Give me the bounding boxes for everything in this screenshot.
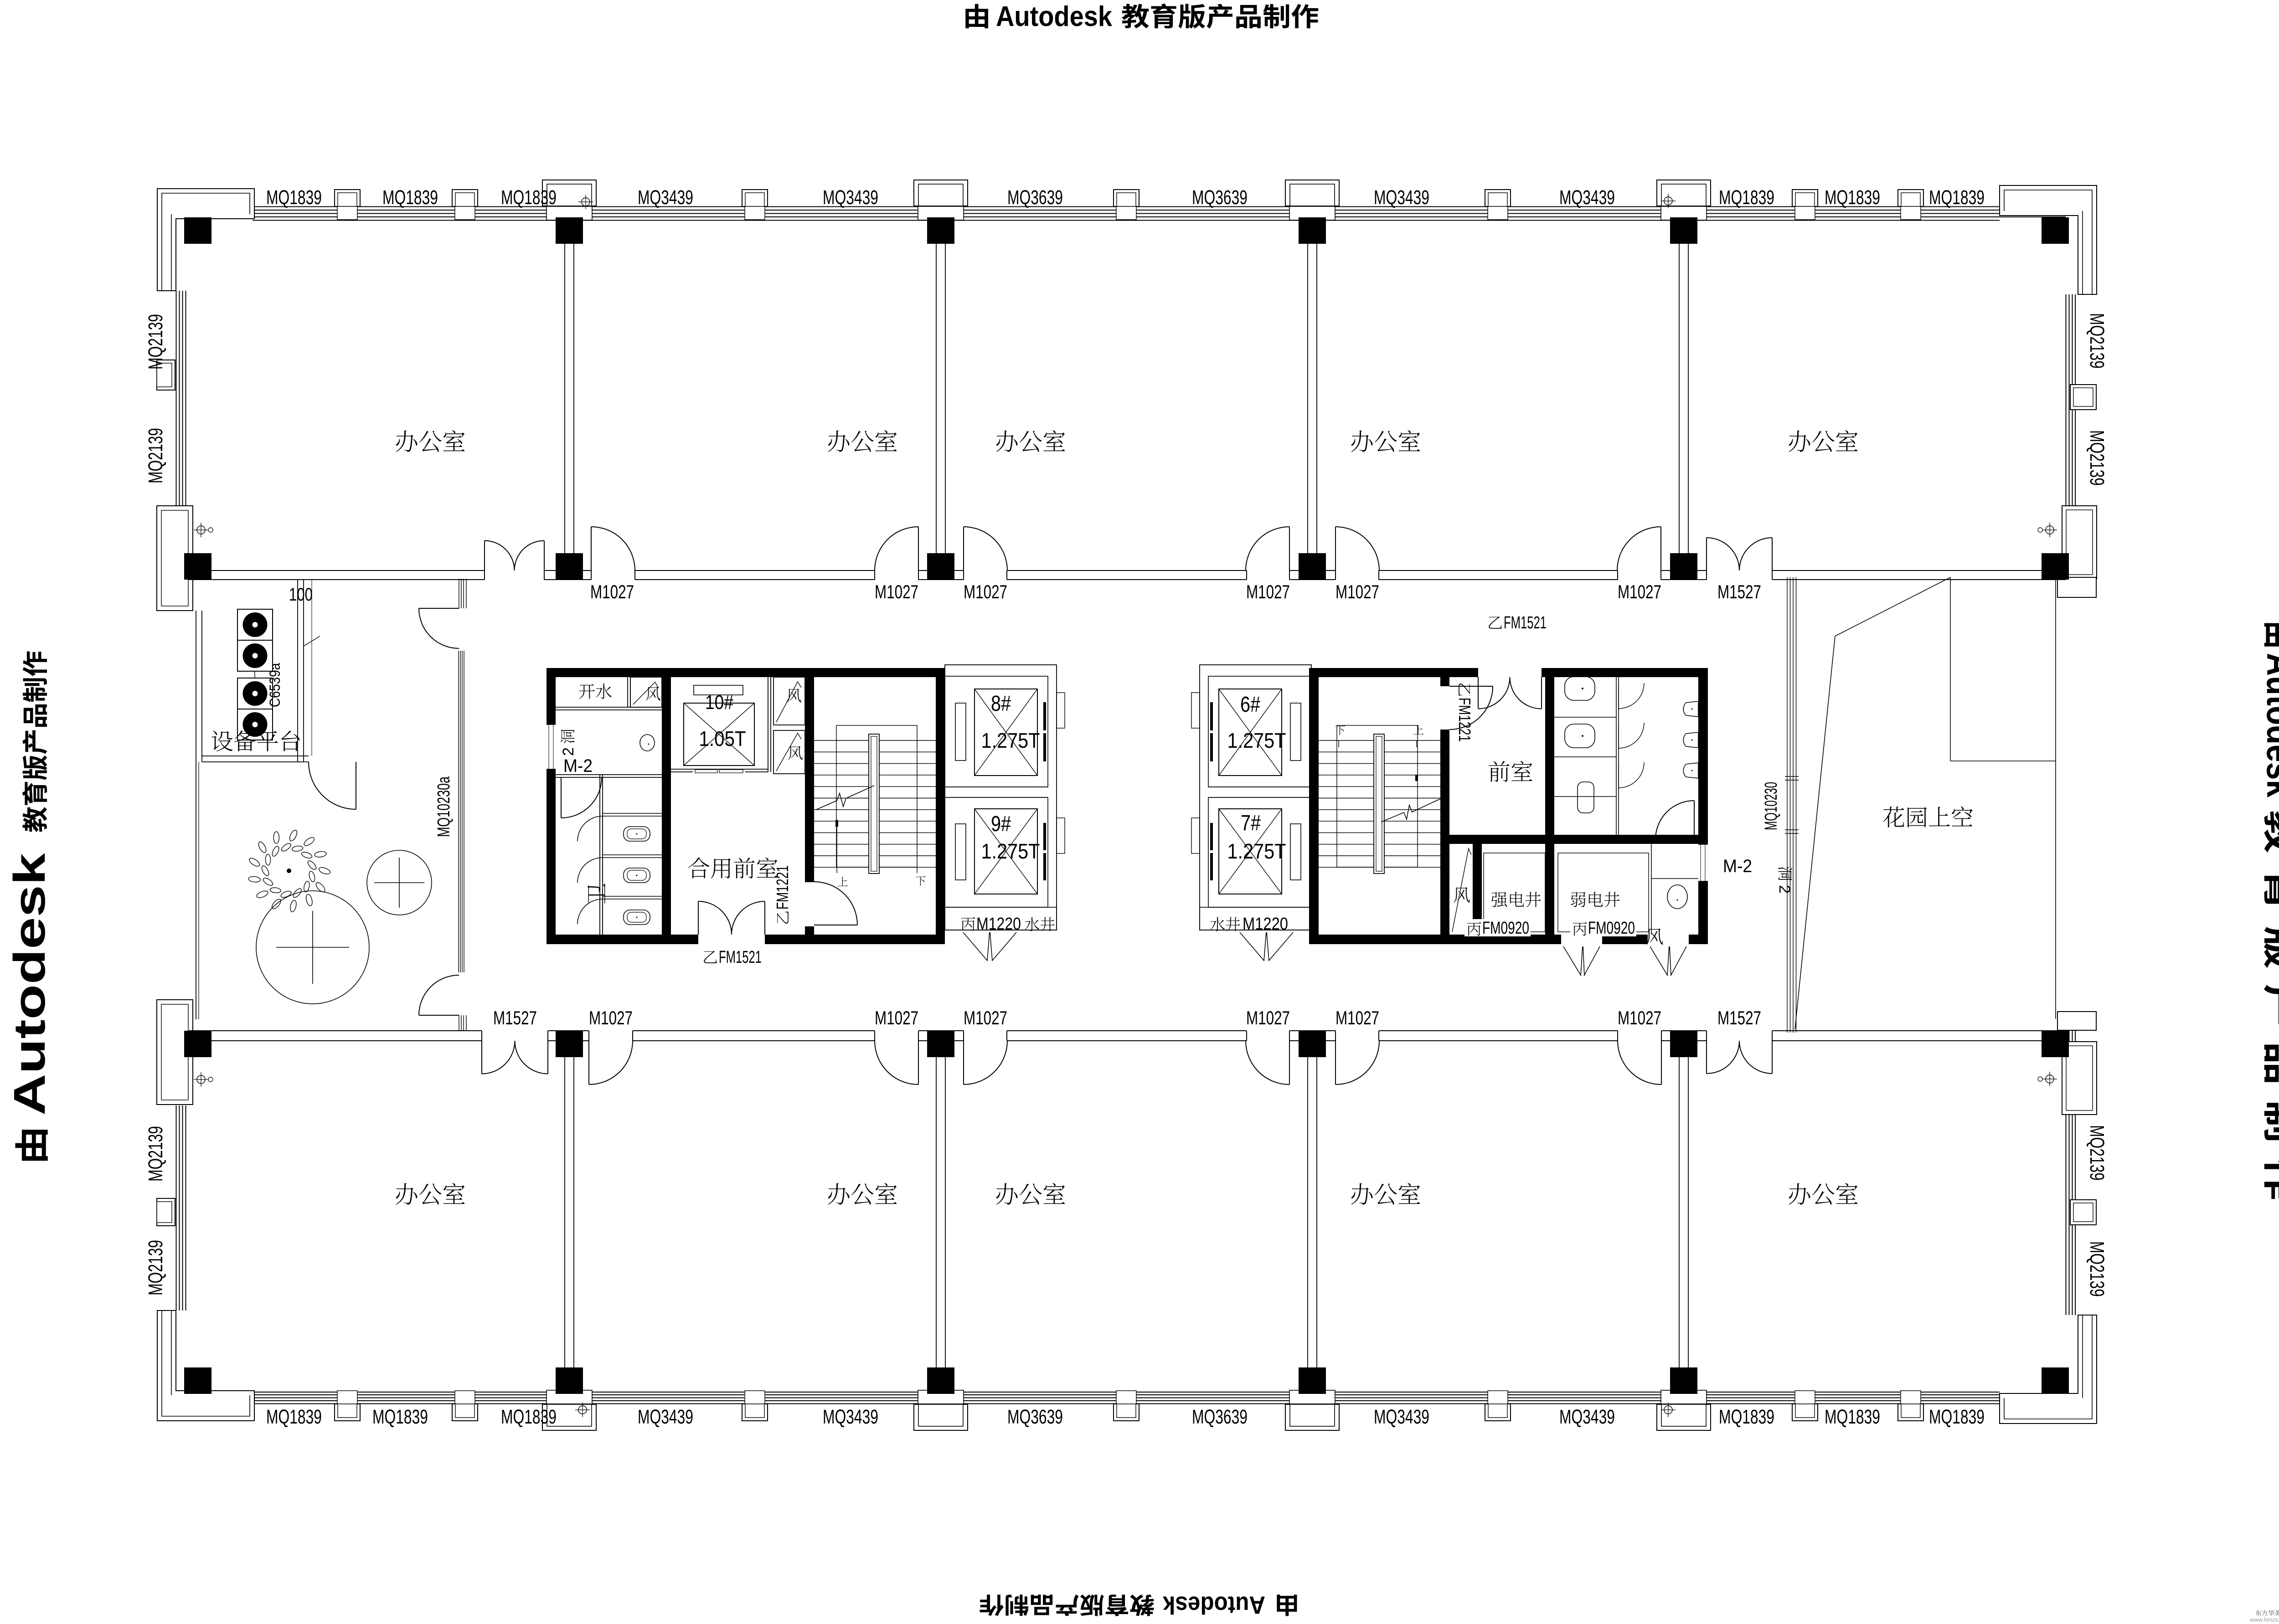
svg-text:9#: 9# <box>991 812 1011 836</box>
svg-text:2: 2 <box>560 747 577 756</box>
svg-text:MQ3439: MQ3439 <box>638 186 693 209</box>
svg-text:M1527: M1527 <box>493 1007 537 1028</box>
svg-text:MQ3439: MQ3439 <box>823 1406 878 1428</box>
svg-text:1.275T: 1.275T <box>981 839 1040 863</box>
svg-text:6#: 6# <box>1240 693 1260 717</box>
svg-text:MQ3439: MQ3439 <box>823 186 878 209</box>
svg-text:M1027: M1027 <box>1246 581 1290 602</box>
svg-text:MQ2139: MQ2139 <box>2086 313 2108 369</box>
svg-text:M-2: M-2 <box>563 756 593 776</box>
svg-text:M1027: M1027 <box>964 1007 1007 1028</box>
svg-text:MQ3639: MQ3639 <box>1192 1406 1248 1428</box>
svg-text:M1027: M1027 <box>1246 1007 1290 1028</box>
svg-text:MQ1839: MQ1839 <box>1929 186 1985 209</box>
svg-text:M1027: M1027 <box>1618 581 1661 602</box>
svg-text:M1527: M1527 <box>1717 581 1761 602</box>
svg-text:FM1521: FM1521 <box>719 948 762 967</box>
svg-text:MQ1839: MQ1839 <box>1719 186 1774 209</box>
svg-text:MQ2139: MQ2139 <box>144 314 167 370</box>
svg-text:M1027: M1027 <box>875 581 918 602</box>
svg-text:MQ3639: MQ3639 <box>1192 186 1248 209</box>
svg-text:FM0920: FM0920 <box>1482 919 1529 938</box>
svg-text:1.05T: 1.05T <box>699 727 746 750</box>
svg-text:Autodesk: Autodesk <box>996 1 1112 32</box>
svg-text:MQ1839: MQ1839 <box>501 1406 557 1428</box>
svg-text:MQ3639: MQ3639 <box>1007 1406 1063 1428</box>
svg-text:MQ3439: MQ3439 <box>638 1406 693 1428</box>
svg-text:2: 2 <box>1776 885 1793 894</box>
svg-text:MQ1839: MQ1839 <box>1719 1406 1774 1428</box>
svg-text:MQ1839: MQ1839 <box>1929 1406 1985 1428</box>
svg-text:Autodesk: Autodesk <box>1163 1591 1265 1619</box>
svg-text:Autodesk: Autodesk <box>5 853 54 1115</box>
svg-text:M1027: M1027 <box>875 1007 918 1028</box>
svg-text:8#: 8# <box>991 692 1011 716</box>
svg-text:MQ3439: MQ3439 <box>1374 1406 1429 1428</box>
svg-text:FM1221: FM1221 <box>773 865 792 910</box>
svg-text:MQ1839: MQ1839 <box>1825 1406 1880 1428</box>
svg-text:FM1521: FM1521 <box>1504 613 1547 632</box>
svg-text:MQ2139: MQ2139 <box>144 1126 167 1182</box>
svg-text:MQ1839: MQ1839 <box>1825 186 1880 209</box>
svg-text:MQ10230: MQ10230 <box>1762 782 1781 830</box>
svg-text:M1027: M1027 <box>590 581 634 602</box>
svg-text:1.275T: 1.275T <box>1227 729 1286 752</box>
svg-text:M-2: M-2 <box>1723 856 1752 876</box>
svg-text:MQ1839: MQ1839 <box>266 1406 322 1428</box>
svg-text:MQ3439: MQ3439 <box>1559 186 1615 209</box>
svg-text:MQ10230a: MQ10230a <box>434 776 454 837</box>
svg-text:MQ2139: MQ2139 <box>2086 430 2108 486</box>
svg-text:M1220: M1220 <box>1243 915 1288 934</box>
svg-text:M1027: M1027 <box>1335 581 1379 602</box>
svg-text:MQ2139: MQ2139 <box>144 1240 167 1295</box>
svg-text:M1027: M1027 <box>1618 1007 1661 1028</box>
svg-text:Autodesk: Autodesk <box>2259 653 2279 797</box>
svg-text:7#: 7# <box>1241 811 1261 835</box>
svg-text:M1027: M1027 <box>589 1007 633 1028</box>
svg-text:MQ1839: MQ1839 <box>382 186 438 209</box>
svg-text:MQ1839: MQ1839 <box>266 186 322 209</box>
svg-text:FM1221: FM1221 <box>1455 698 1474 742</box>
svg-text:M1220: M1220 <box>976 915 1021 934</box>
svg-text:100: 100 <box>289 585 313 605</box>
svg-text:1.275T: 1.275T <box>981 729 1040 752</box>
svg-text:MQ1839: MQ1839 <box>372 1406 428 1428</box>
svg-text:C6539a: C6539a <box>267 663 283 707</box>
svg-text:M1527: M1527 <box>1717 1007 1761 1028</box>
svg-text:MQ2139: MQ2139 <box>2086 1241 2108 1297</box>
svg-text:1.275T: 1.275T <box>1227 839 1286 863</box>
svg-text:MQ2139: MQ2139 <box>2086 1125 2108 1181</box>
svg-text:M1027: M1027 <box>964 581 1007 602</box>
svg-text:www.hmzs.net: www.hmzs.net <box>2249 1616 2279 1623</box>
svg-text:MQ3439: MQ3439 <box>1559 1406 1615 1428</box>
svg-text:10#: 10# <box>705 691 733 714</box>
svg-text:MQ3639: MQ3639 <box>1007 186 1063 209</box>
svg-text:MQ3439: MQ3439 <box>1374 186 1429 209</box>
svg-text:MQ2139: MQ2139 <box>144 428 167 483</box>
svg-text:M1027: M1027 <box>1335 1007 1379 1028</box>
svg-text:MQ1839: MQ1839 <box>501 186 557 209</box>
svg-text:FM0920: FM0920 <box>1588 919 1635 938</box>
